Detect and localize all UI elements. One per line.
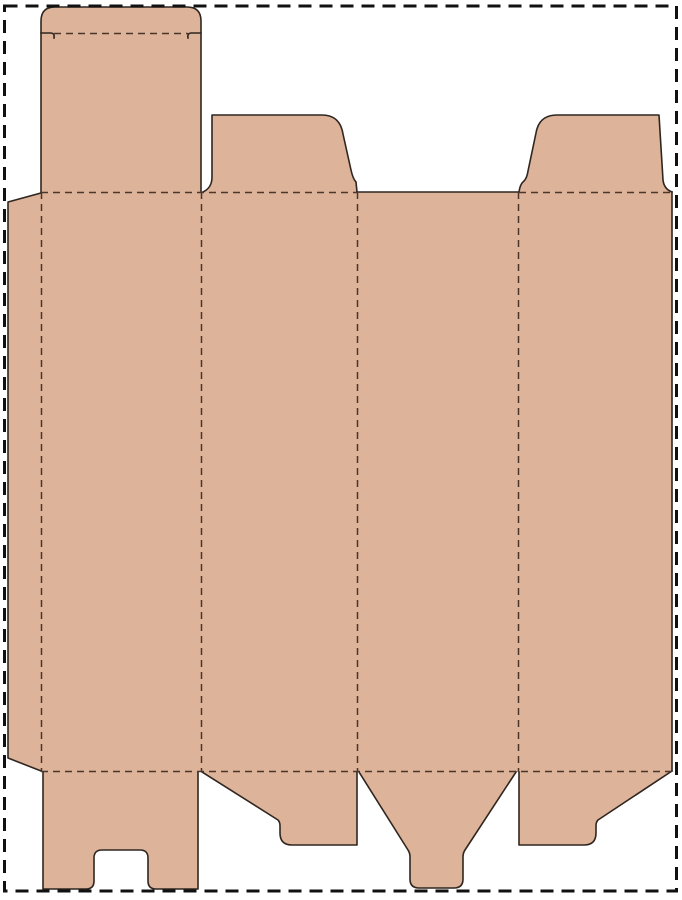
board-fill [8, 7, 672, 889]
box-dieline-diagram [0, 0, 682, 900]
dieline-sheet [0, 0, 682, 900]
